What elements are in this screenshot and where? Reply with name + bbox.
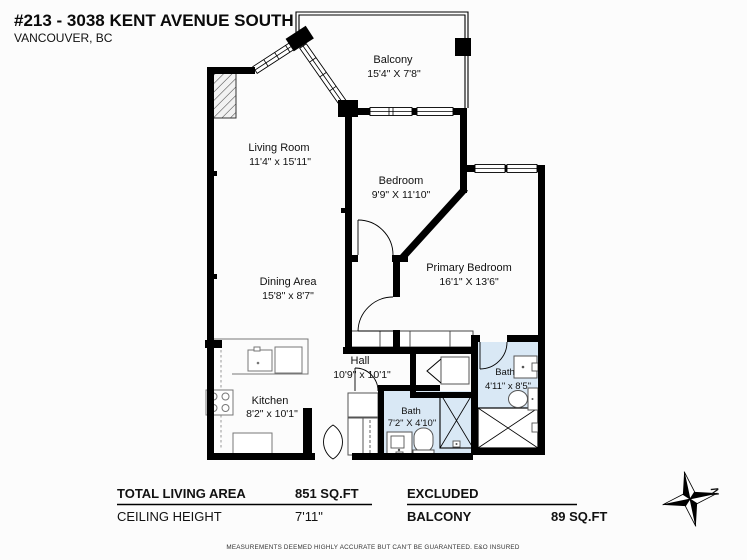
wall-tick xyxy=(341,208,345,213)
bath-main-sink-icon xyxy=(514,356,538,378)
wall-segment xyxy=(412,108,417,115)
floor-plan-canvas: #213 - 3038 KENT AVENUE SOUTH VANCOUVER,… xyxy=(0,0,747,560)
wall-segment xyxy=(205,340,222,348)
wall-segment xyxy=(303,408,312,458)
page-subtitle: VANCOUVER, BC xyxy=(14,31,113,45)
wall-segment xyxy=(460,165,475,172)
bedroom-label: Bedroom xyxy=(379,175,424,187)
hall-closet-box xyxy=(441,357,469,384)
wall-segment xyxy=(393,255,400,297)
wall-corner-block xyxy=(338,100,358,117)
wall-segment xyxy=(207,453,315,460)
wall-segment xyxy=(460,108,467,193)
hall-dims: 10'9" x 10'1" xyxy=(333,369,391,381)
bath-small-dims: 7'2" X 4'10" xyxy=(388,418,436,429)
bedroom-dims: 9'9" X 11'10" xyxy=(372,189,431,201)
bedroom-door xyxy=(358,220,393,255)
bedroom-window xyxy=(370,108,453,116)
kitchen-label: Kitchen xyxy=(252,395,289,407)
summary-table: TOTAL LIVING AREA 851 SQ.FT CEILING HEIG… xyxy=(117,486,607,524)
wall-segment xyxy=(207,67,255,74)
wall-segment xyxy=(343,347,478,354)
page-title: #213 - 3038 KENT AVENUE SOUTH xyxy=(14,11,294,30)
wall-segment xyxy=(507,335,545,342)
wall-tick xyxy=(214,274,217,279)
closet-panel-left xyxy=(348,418,363,455)
primary-bedroom-door xyxy=(358,297,393,331)
floor-plan-page: #213 - 3038 KENT AVENUE SOUTH VANCOUVER,… xyxy=(0,0,747,560)
bath-main-label: Bath xyxy=(495,367,515,378)
kitchen-appliance xyxy=(275,347,302,373)
kitchen-sink-icon xyxy=(248,347,272,371)
excluded-label: EXCLUDED xyxy=(407,486,479,501)
wall-segment xyxy=(352,453,473,460)
primary-closet xyxy=(350,331,473,347)
wall-segment xyxy=(207,67,214,460)
wall-segment xyxy=(378,385,384,460)
primary-bedroom-label: Primary Bedroom xyxy=(426,262,512,274)
hall-label: Hall xyxy=(351,355,370,367)
compass-icon: N xyxy=(657,465,727,532)
wall-segment xyxy=(345,115,352,347)
excluded-item-label: BALCONY xyxy=(407,509,472,524)
compass-north-label: N xyxy=(708,487,721,496)
wall-segment xyxy=(345,255,358,262)
bath-small-sink-icon xyxy=(387,432,412,456)
balcony-diagonal-window xyxy=(300,44,347,106)
wall-tick xyxy=(214,171,217,176)
bath-small-label: Bath xyxy=(401,406,421,417)
kitchen-cabinet xyxy=(233,433,272,455)
total-living-area-value: 851 SQ.FT xyxy=(295,486,359,501)
wall-segment xyxy=(473,448,545,455)
fireplace-icon xyxy=(213,71,236,118)
wall-segment xyxy=(410,392,478,398)
balcony-post xyxy=(455,38,471,56)
living-room-label: Living Room xyxy=(248,142,309,154)
closet-panel-right xyxy=(363,418,378,455)
bath-main-dims: 4'11" x 8'5" xyxy=(485,381,531,392)
primary-bedroom-dims: 16'1" X 13'6" xyxy=(439,276,499,288)
living-room-dims: 11'4" x 15'11" xyxy=(249,156,311,168)
bifold-door-icon xyxy=(427,359,441,383)
disclaimer-text: MEASUREMENTS DEEMED HIGHLY ACCURATE BUT … xyxy=(226,544,519,551)
bath-main-tub xyxy=(478,408,538,448)
dining-area-dims: 15'8" x 8'7" xyxy=(262,290,314,302)
ceiling-height-value: 7'11" xyxy=(295,509,323,524)
wall-segment xyxy=(378,385,440,391)
wall-segment xyxy=(538,165,545,455)
dining-area-label: Dining Area xyxy=(260,276,318,288)
total-living-area-label: TOTAL LIVING AREA xyxy=(117,486,246,501)
entry-door xyxy=(324,425,343,459)
wall-segment xyxy=(505,165,507,172)
ceiling-height-label: CEILING HEIGHT xyxy=(117,509,222,524)
balcony-dims: 15'4" X 7'8" xyxy=(367,68,421,80)
kitchen-dims: 8'2" x 10'1" xyxy=(246,408,298,420)
excluded-item-value: 89 SQ.FT xyxy=(551,509,607,524)
header: #213 - 3038 KENT AVENUE SOUTH VANCOUVER,… xyxy=(14,11,294,45)
balcony-label: Balcony xyxy=(373,54,413,66)
laundry-box xyxy=(348,393,378,417)
